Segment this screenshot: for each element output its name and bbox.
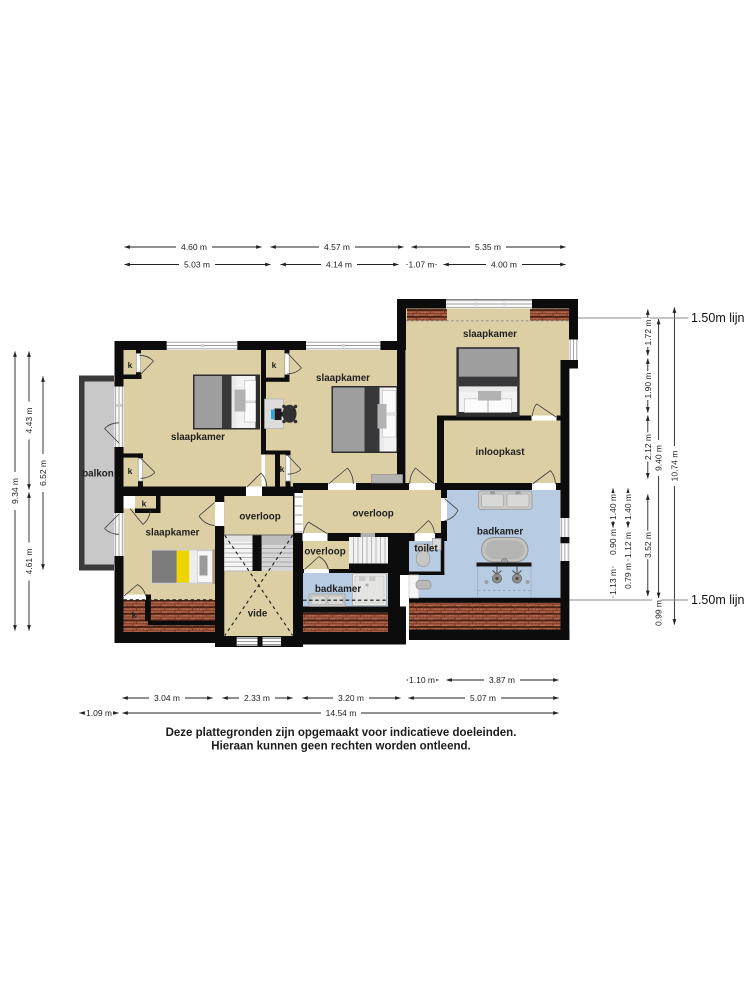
svg-text:1.12 m: 1.12 m xyxy=(623,532,633,558)
svg-text:k: k xyxy=(132,610,137,620)
svg-text:1.90 m: 1.90 m xyxy=(643,373,653,399)
svg-text:slaapkamer: slaapkamer xyxy=(146,528,200,539)
svg-text:3.52 m: 3.52 m xyxy=(643,532,653,558)
svg-text:vide: vide xyxy=(248,609,268,620)
svg-text:5.07 m: 5.07 m xyxy=(470,693,496,703)
svg-text:slaapkamer: slaapkamer xyxy=(316,373,370,384)
svg-text:0.99 m: 0.99 m xyxy=(654,600,664,626)
svg-text:14.54 m: 14.54 m xyxy=(326,708,357,718)
svg-text:k: k xyxy=(272,360,277,370)
svg-text:4.61 m: 4.61 m xyxy=(24,549,34,575)
svg-text:k: k xyxy=(280,464,285,474)
svg-text:slaapkamer: slaapkamer xyxy=(463,329,517,340)
svg-text:overloop: overloop xyxy=(304,547,345,558)
svg-text:3.04 m: 3.04 m xyxy=(154,693,180,703)
svg-text:9.34 m: 9.34 m xyxy=(10,478,20,504)
svg-text:2.33 m: 2.33 m xyxy=(244,693,270,703)
svg-text:0.90 m: 0.90 m xyxy=(608,529,618,555)
svg-text:2.12 m: 2.12 m xyxy=(643,434,653,460)
svg-text:1.40 m: 1.40 m xyxy=(623,494,633,520)
svg-text:1.50m lijn: 1.50m lijn xyxy=(691,593,745,607)
svg-text:4.14 m: 4.14 m xyxy=(326,260,352,270)
svg-text:Hieraan kunnen geen rechten wo: Hieraan kunnen geen rechten worden ontle… xyxy=(211,741,470,753)
svg-text:Deze plattegronden zijn opgema: Deze plattegronden zijn opgemaakt voor i… xyxy=(166,727,517,739)
svg-text:1.13 m: 1.13 m xyxy=(608,569,618,595)
svg-text:0.79 m: 0.79 m xyxy=(623,563,633,589)
svg-text:1.50m lijn: 1.50m lijn xyxy=(691,311,745,325)
svg-text:balkon: balkon xyxy=(82,469,114,480)
svg-text:1.40 m: 1.40 m xyxy=(608,494,618,520)
svg-text:slaapkamer: slaapkamer xyxy=(171,432,225,443)
svg-text:1.10 m: 1.10 m xyxy=(409,675,435,685)
svg-text:3.87 m: 3.87 m xyxy=(489,675,515,685)
svg-text:k: k xyxy=(128,360,133,370)
svg-text:5.03 m: 5.03 m xyxy=(184,260,210,270)
svg-text:10.74 m: 10.74 m xyxy=(669,451,679,482)
svg-text:1.07 m: 1.07 m xyxy=(409,260,435,270)
svg-text:6.52 m: 6.52 m xyxy=(38,460,48,486)
svg-text:4.57 m: 4.57 m xyxy=(324,242,350,252)
svg-text:4.60 m: 4.60 m xyxy=(181,242,207,252)
svg-text:badkamer: badkamer xyxy=(477,527,523,538)
svg-text:1.72 m: 1.72 m xyxy=(643,320,653,346)
svg-text:toilet: toilet xyxy=(414,544,438,555)
svg-text:inloopkast: inloopkast xyxy=(476,447,526,458)
svg-text:overloop: overloop xyxy=(239,512,280,523)
svg-text:badkamer: badkamer xyxy=(315,584,361,595)
svg-text:3.20 m: 3.20 m xyxy=(338,693,364,703)
svg-text:k: k xyxy=(142,499,147,509)
svg-text:4.00 m: 4.00 m xyxy=(491,260,517,270)
svg-text:k: k xyxy=(128,466,133,476)
svg-text:5.35 m: 5.35 m xyxy=(475,242,501,252)
svg-text:overloop: overloop xyxy=(352,509,393,520)
svg-text:4.43 m: 4.43 m xyxy=(24,408,34,434)
svg-text:1.09 m: 1.09 m xyxy=(86,708,112,718)
svg-text:9.40 m: 9.40 m xyxy=(654,445,664,471)
